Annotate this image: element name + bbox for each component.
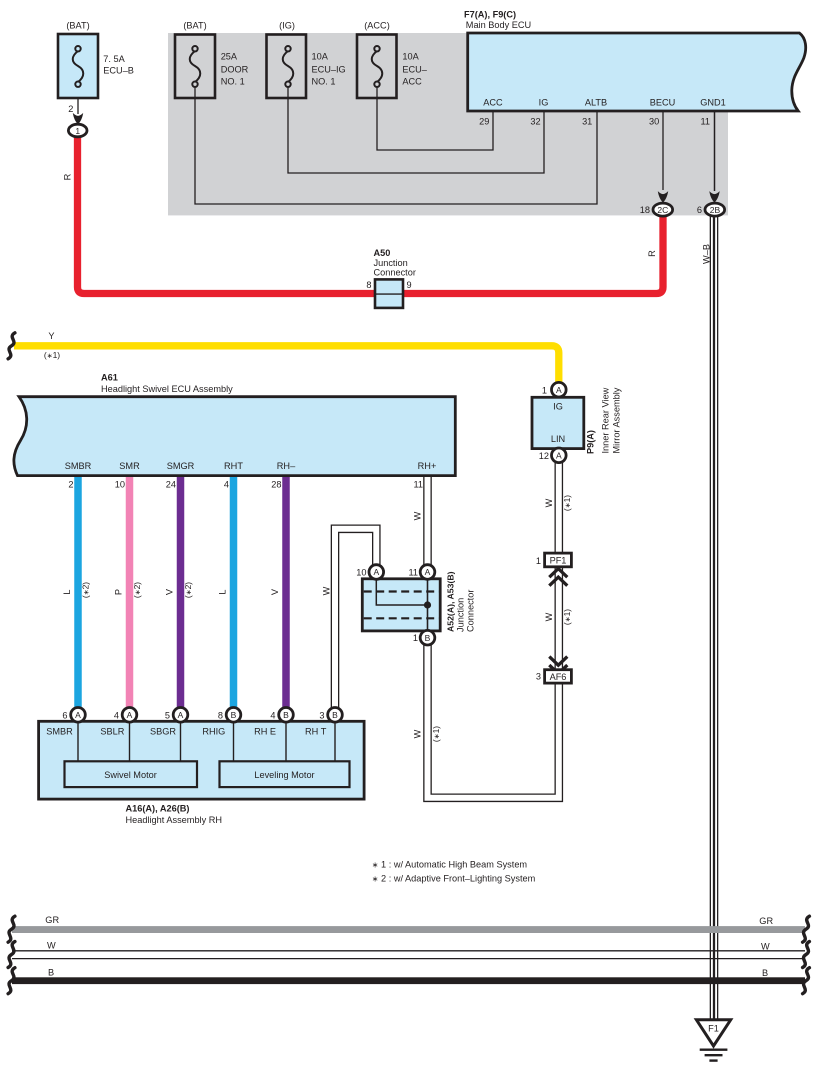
svg-text:A: A [373,567,379,577]
svg-text:GR: GR [45,915,59,925]
svg-text:ALTB: ALTB [585,98,607,108]
svg-text:SMBR: SMBR [46,727,73,737]
svg-text:W: W [413,511,423,520]
svg-text:(∗2): (∗2) [81,582,91,598]
svg-text:IG: IG [553,402,563,412]
svg-text:RHIG: RHIG [202,727,225,737]
svg-text:SBLR: SBLR [100,727,124,737]
svg-text:B: B [425,633,431,643]
svg-text:(BAT): (BAT) [66,21,89,31]
svg-text:24: 24 [166,480,176,490]
svg-text:11: 11 [700,117,710,127]
svg-text:4: 4 [224,480,229,490]
svg-text:Y: Y [48,331,54,341]
svg-text:3: 3 [319,710,324,720]
svg-text:Junction: Junction [456,598,466,632]
svg-text:Headlight Swivel ECU Assembly: Headlight Swivel ECU Assembly [101,384,233,394]
svg-text:B: B [332,710,338,720]
svg-text:ECU–B: ECU–B [103,66,134,76]
svg-text:LIN: LIN [551,434,565,444]
svg-text:F1: F1 [708,1024,719,1034]
svg-text:ACC: ACC [483,98,503,108]
svg-text:5: 5 [165,710,170,720]
svg-text:32: 32 [530,117,540,127]
svg-text:W: W [413,729,423,738]
svg-text:SBGR: SBGR [150,727,176,737]
svg-text:Swivel Motor: Swivel Motor [104,770,157,780]
svg-text:V: V [165,588,175,595]
svg-text:W: W [544,498,554,507]
svg-text:11: 11 [408,568,418,578]
svg-text:F7(A), F9(C): F7(A), F9(C) [464,10,516,20]
svg-text:2B: 2B [710,205,721,215]
svg-text:∗ 1 : w/ Automatic High Beam S: ∗ 1 : w/ Automatic High Beam System [372,859,528,869]
svg-text:BECU: BECU [650,98,676,108]
svg-text:W–B: W–B [702,244,712,264]
svg-text:A16(A), A26(B): A16(A), A26(B) [126,804,190,814]
svg-text:1: 1 [413,633,418,643]
svg-text:(∗2): (∗2) [132,582,142,598]
svg-text:30: 30 [649,117,659,127]
svg-text:R: R [63,173,73,180]
svg-text:RH E: RH E [254,727,276,737]
svg-text:A: A [425,567,431,577]
svg-text:A: A [556,385,562,395]
svg-text:(BAT): (BAT) [183,21,206,31]
svg-text:SMBR: SMBR [65,461,92,471]
svg-text:L: L [62,589,72,594]
svg-text:ACC: ACC [402,77,422,87]
svg-text:A: A [178,710,184,720]
svg-text:9: 9 [407,280,412,290]
svg-text:10A: 10A [402,52,419,62]
svg-text:GR: GR [759,916,773,926]
svg-text:RH–: RH– [277,461,296,471]
svg-text:(∗1): (∗1) [431,726,441,742]
svg-text:31: 31 [582,117,592,127]
svg-text:4: 4 [114,710,119,720]
svg-text:6: 6 [697,205,702,215]
svg-text:29: 29 [479,117,489,127]
svg-text:Headlight Assembly RH: Headlight Assembly RH [126,815,223,825]
svg-text:V: V [270,588,280,595]
svg-text:1: 1 [536,556,541,566]
svg-text:B: B [762,968,768,978]
svg-text:NO. 1: NO. 1 [221,77,245,87]
svg-text:18: 18 [640,205,650,215]
svg-text:Inner Rear View: Inner Rear View [601,387,611,453]
svg-text:10A: 10A [312,52,329,62]
svg-text:11: 11 [413,480,423,490]
svg-text:DOOR: DOOR [221,65,249,75]
svg-text:(∗1): (∗1) [562,495,572,511]
svg-text:ECU–IG: ECU–IG [312,65,346,75]
svg-text:12: 12 [539,451,549,461]
svg-text:B: B [48,968,54,978]
svg-text:L: L [218,589,228,594]
svg-text:28: 28 [271,480,281,490]
svg-text:Connector: Connector [374,267,416,277]
svg-text:1: 1 [542,386,547,396]
svg-text:PF1: PF1 [550,556,567,566]
svg-text:7. 5A: 7. 5A [103,54,125,64]
svg-text:(IG): (IG) [279,21,295,31]
svg-text:2: 2 [68,480,73,490]
svg-text:2C: 2C [657,205,668,215]
svg-text:ECU–: ECU– [402,65,427,75]
svg-text:P: P [114,589,124,595]
svg-text:10: 10 [115,480,125,490]
svg-text:1: 1 [75,126,80,136]
svg-text:A: A [556,451,562,461]
svg-text:SMGR: SMGR [167,461,195,471]
svg-text:2: 2 [68,104,73,114]
svg-text:4: 4 [270,710,275,720]
svg-text:B: B [283,710,289,720]
svg-text:8: 8 [366,280,371,290]
svg-text:A52(A), A53(B): A52(A), A53(B) [446,571,456,632]
svg-text:(∗1): (∗1) [562,609,572,625]
svg-text:W: W [544,612,554,621]
svg-text:W: W [761,942,770,952]
svg-text:A: A [75,710,81,720]
svg-text:Junction: Junction [374,258,408,268]
svg-text:8: 8 [218,710,223,720]
svg-text:P9(A): P9(A) [586,430,596,454]
svg-text:6: 6 [62,710,67,720]
svg-text:RH T: RH T [305,727,327,737]
svg-text:R: R [647,250,657,257]
svg-text:W: W [322,586,332,595]
svg-text:10: 10 [356,568,366,578]
svg-text:SMR: SMR [119,461,140,471]
svg-text:GND1: GND1 [700,98,726,108]
svg-text:A50: A50 [374,248,391,258]
svg-text:AF6: AF6 [550,672,567,682]
svg-text:RH+: RH+ [418,461,437,471]
svg-text:RHT: RHT [224,461,243,471]
svg-text:(ACC): (ACC) [364,21,390,31]
svg-text:W: W [47,941,56,951]
svg-text:Connector: Connector [466,590,476,632]
svg-text:Leveling Motor: Leveling Motor [254,770,314,780]
svg-text:∗ 2 : w/ Adaptive Front–Lighti: ∗ 2 : w/ Adaptive Front–Lighting System [372,873,536,883]
svg-text:3: 3 [536,672,541,682]
svg-text:Main Body ECU: Main Body ECU [466,20,531,30]
svg-text:(∗2): (∗2) [183,582,193,598]
svg-text:(∗1): (∗1) [44,350,60,360]
svg-text:IG: IG [539,98,549,108]
svg-text:25A: 25A [221,52,238,62]
svg-text:A61: A61 [101,373,118,383]
svg-text:Mirror Assembly: Mirror Assembly [612,387,622,453]
svg-text:NO. 1: NO. 1 [312,77,336,87]
svg-text:B: B [231,710,237,720]
svg-text:A: A [127,710,133,720]
